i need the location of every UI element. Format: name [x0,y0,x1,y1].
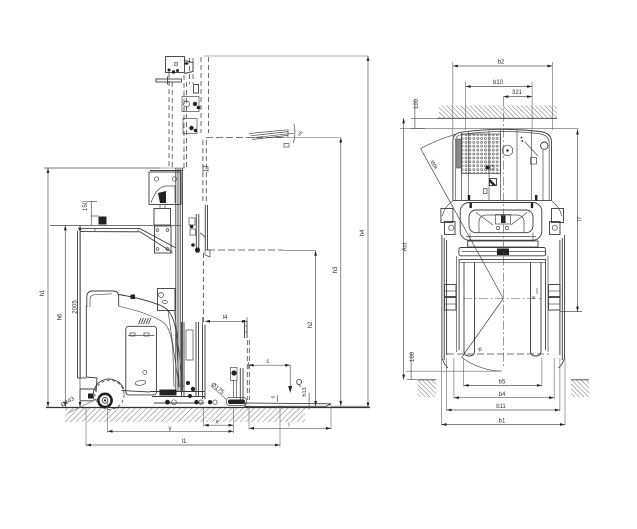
svg-text:l1: l1 [182,439,187,445]
svg-text:y: y [169,426,172,432]
svg-text:Ø343: Ø343 [60,396,76,409]
svg-text:h13: h13 [302,387,308,396]
svg-text:s: s [270,395,276,398]
svg-text:h4: h4 [360,229,366,236]
svg-text:Wa: Wa [428,160,438,171]
svg-text:Ast: Ast [403,242,409,251]
svg-text:c: c [267,359,270,365]
svg-text:l4: l4 [223,315,228,321]
svg-text:l7: l7 [578,216,584,221]
svg-text:321: 321 [512,90,523,96]
svg-text:100: 100 [414,98,420,109]
svg-text:b1: b1 [499,419,506,425]
svg-text:h6: h6 [58,313,64,320]
svg-text:h1: h1 [40,289,46,296]
svg-text:150: 150 [83,200,89,211]
svg-text:b4: b4 [499,392,506,398]
svg-text:Q: Q [296,378,302,387]
svg-text:b11: b11 [496,404,506,410]
svg-text:3°: 3° [298,132,303,138]
svg-text:h2: h2 [308,321,314,328]
svg-text:b10: b10 [493,80,504,86]
svg-text:R: R [475,347,482,354]
svg-text:b5: b5 [499,380,506,386]
svg-text:100: 100 [410,351,416,362]
svg-text:l: l [288,423,289,429]
svg-text:x: x [216,420,219,426]
svg-text:h3: h3 [333,266,339,273]
svg-text:b2: b2 [498,60,505,66]
svg-text:Ø175: Ø175 [210,382,226,396]
svg-text:e: e [531,296,537,299]
